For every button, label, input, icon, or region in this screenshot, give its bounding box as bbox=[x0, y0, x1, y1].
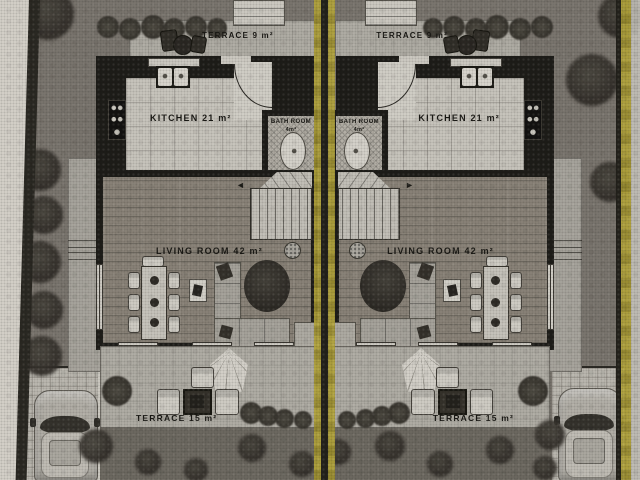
dining-chair bbox=[128, 294, 140, 311]
boundary-line-center-left bbox=[314, 0, 321, 480]
bathroom-area-label: 4m² bbox=[336, 127, 382, 133]
dining-chair bbox=[470, 294, 482, 311]
tree bbox=[79, 429, 113, 463]
bush bbox=[518, 376, 548, 406]
plate bbox=[150, 276, 159, 285]
page-edge-right bbox=[631, 0, 640, 480]
tree bbox=[427, 451, 453, 477]
terrace-bottom-label: TERRACE 15 m² bbox=[136, 413, 217, 423]
bush bbox=[338, 411, 356, 429]
sink-basin bbox=[478, 68, 492, 86]
boundary-line-center-gap bbox=[321, 0, 328, 480]
car bbox=[557, 386, 623, 480]
tree bbox=[135, 449, 161, 475]
round-rug bbox=[360, 260, 406, 312]
bush bbox=[372, 406, 392, 426]
patio-chair bbox=[411, 389, 435, 415]
tree bbox=[486, 436, 514, 464]
plate bbox=[150, 298, 159, 307]
bush bbox=[102, 376, 132, 406]
tree bbox=[566, 54, 618, 106]
living-room-label: LIVING ROOM 42 m² bbox=[387, 246, 494, 256]
tree bbox=[375, 431, 405, 461]
round-rug bbox=[244, 260, 290, 312]
terrace-bottom-label: TERRACE 15 m² bbox=[433, 413, 514, 423]
bush bbox=[97, 16, 119, 38]
dining-chair bbox=[128, 272, 140, 289]
dining-chair bbox=[168, 294, 180, 311]
planter bbox=[284, 242, 301, 259]
boundary-line-center-right bbox=[328, 0, 335, 480]
sink-basin bbox=[158, 68, 172, 86]
dining-chair bbox=[128, 316, 140, 333]
stair-direction-arrow: ◄ bbox=[236, 180, 245, 190]
patio-table-round bbox=[457, 35, 477, 55]
terrace-top-label: TERRACE 9 m² bbox=[202, 31, 274, 40]
planter bbox=[349, 242, 366, 259]
bush bbox=[509, 18, 531, 40]
stair-direction-arrow: ◄ bbox=[405, 180, 414, 190]
patio-chair bbox=[470, 389, 493, 415]
patio-chair bbox=[157, 389, 180, 415]
window bbox=[96, 264, 103, 330]
staircase bbox=[250, 188, 312, 240]
living-room-label: LIVING ROOM 42 m² bbox=[156, 246, 263, 256]
stove bbox=[108, 100, 126, 140]
plate bbox=[491, 276, 500, 285]
dining-chair bbox=[470, 272, 482, 289]
entry-steps bbox=[365, 0, 417, 26]
dining-chair bbox=[510, 272, 522, 289]
kitchen-label: KITCHEN 21 m² bbox=[418, 113, 500, 123]
bush bbox=[356, 409, 375, 428]
terrace-top-label: TERRACE 9 m² bbox=[376, 31, 448, 40]
plate bbox=[150, 318, 159, 327]
bathroom-area-label: 4m² bbox=[268, 127, 314, 133]
bush bbox=[531, 16, 553, 38]
bush bbox=[294, 411, 312, 429]
dining-chair bbox=[168, 272, 180, 289]
dining-chair bbox=[168, 316, 180, 333]
bathroom-label: BATH ROOM bbox=[268, 119, 314, 125]
sink-basin bbox=[174, 68, 188, 86]
sink-basin bbox=[462, 68, 476, 86]
kitchen-label: KITCHEN 21 m² bbox=[150, 113, 232, 123]
bush bbox=[275, 409, 294, 428]
tree bbox=[238, 434, 266, 462]
boundary-line-right-yellow bbox=[621, 0, 631, 480]
bathtub bbox=[344, 132, 370, 170]
bathroom-label: BATH ROOM bbox=[336, 119, 382, 125]
patio-table-inner bbox=[190, 395, 204, 408]
bathtub bbox=[280, 132, 306, 170]
dining-chair bbox=[510, 294, 522, 311]
patio-table-inner bbox=[446, 395, 460, 408]
entry-steps bbox=[233, 0, 285, 26]
tree bbox=[184, 458, 208, 480]
patio-chair bbox=[191, 367, 214, 388]
window bbox=[547, 264, 554, 330]
plate bbox=[491, 318, 500, 327]
plate bbox=[491, 298, 500, 307]
stove bbox=[524, 100, 542, 140]
staircase bbox=[338, 188, 400, 240]
bush bbox=[119, 18, 141, 40]
patio-chair bbox=[436, 367, 459, 388]
floor-plan-photo: TERRACE 9 m² KITCHEN 21 m² BATH ROOM 4m²… bbox=[0, 0, 640, 480]
dining-chair bbox=[510, 316, 522, 333]
patio-chair bbox=[215, 389, 239, 415]
tree bbox=[535, 420, 565, 450]
tree bbox=[289, 451, 315, 477]
tree bbox=[533, 456, 557, 480]
dining-chair bbox=[470, 316, 482, 333]
